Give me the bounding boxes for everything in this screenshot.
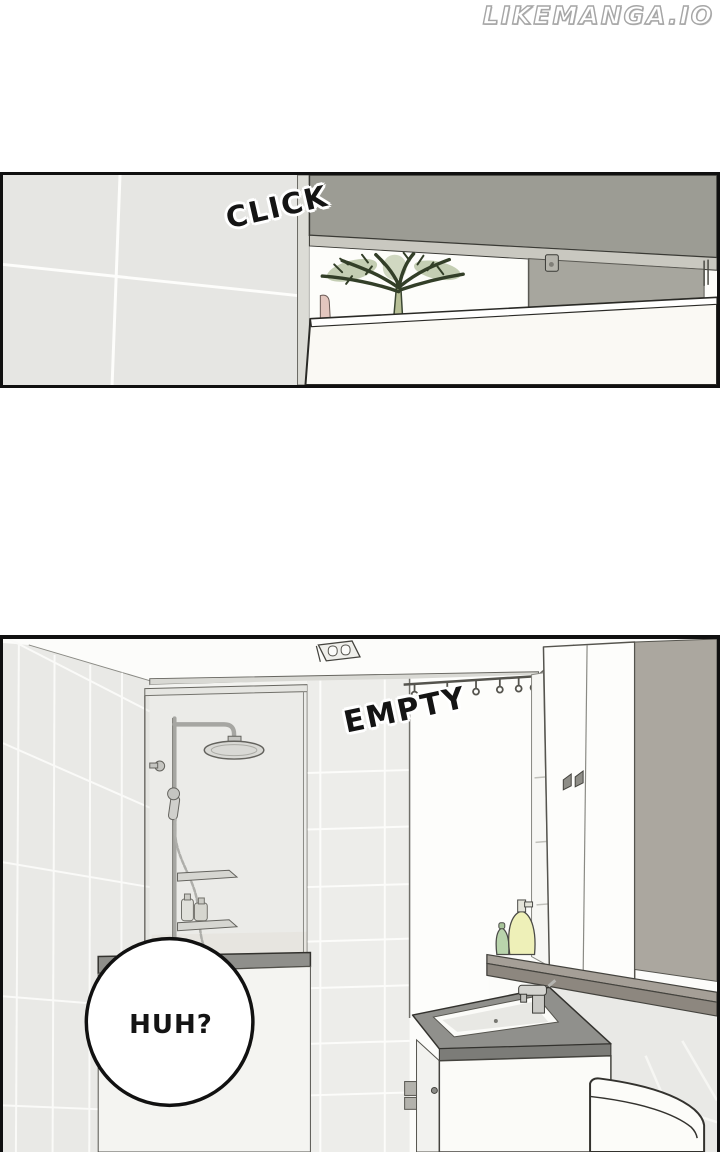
mirror-cabinet xyxy=(543,642,634,984)
comic-page: LIKEMANGA.IO xyxy=(0,0,720,1152)
wall-bracket xyxy=(405,1082,418,1096)
pink-object xyxy=(320,295,330,319)
speech-bubble-text: HUH? xyxy=(87,941,255,1109)
cabinet-front xyxy=(439,1056,611,1152)
mid-tiled-wall xyxy=(307,679,409,1152)
panel1-art xyxy=(3,175,717,385)
accent-wall xyxy=(635,639,717,981)
cabinet-knob xyxy=(431,1088,437,1094)
site-watermark: LIKEMANGA.IO xyxy=(483,1,714,30)
panel-door-opening: CLICK xyxy=(0,172,720,388)
panel-empty-bathroom: EMPTY HUH? xyxy=(0,635,720,1152)
wall-bracket xyxy=(405,1097,418,1109)
shower-glass-panel xyxy=(145,685,308,957)
